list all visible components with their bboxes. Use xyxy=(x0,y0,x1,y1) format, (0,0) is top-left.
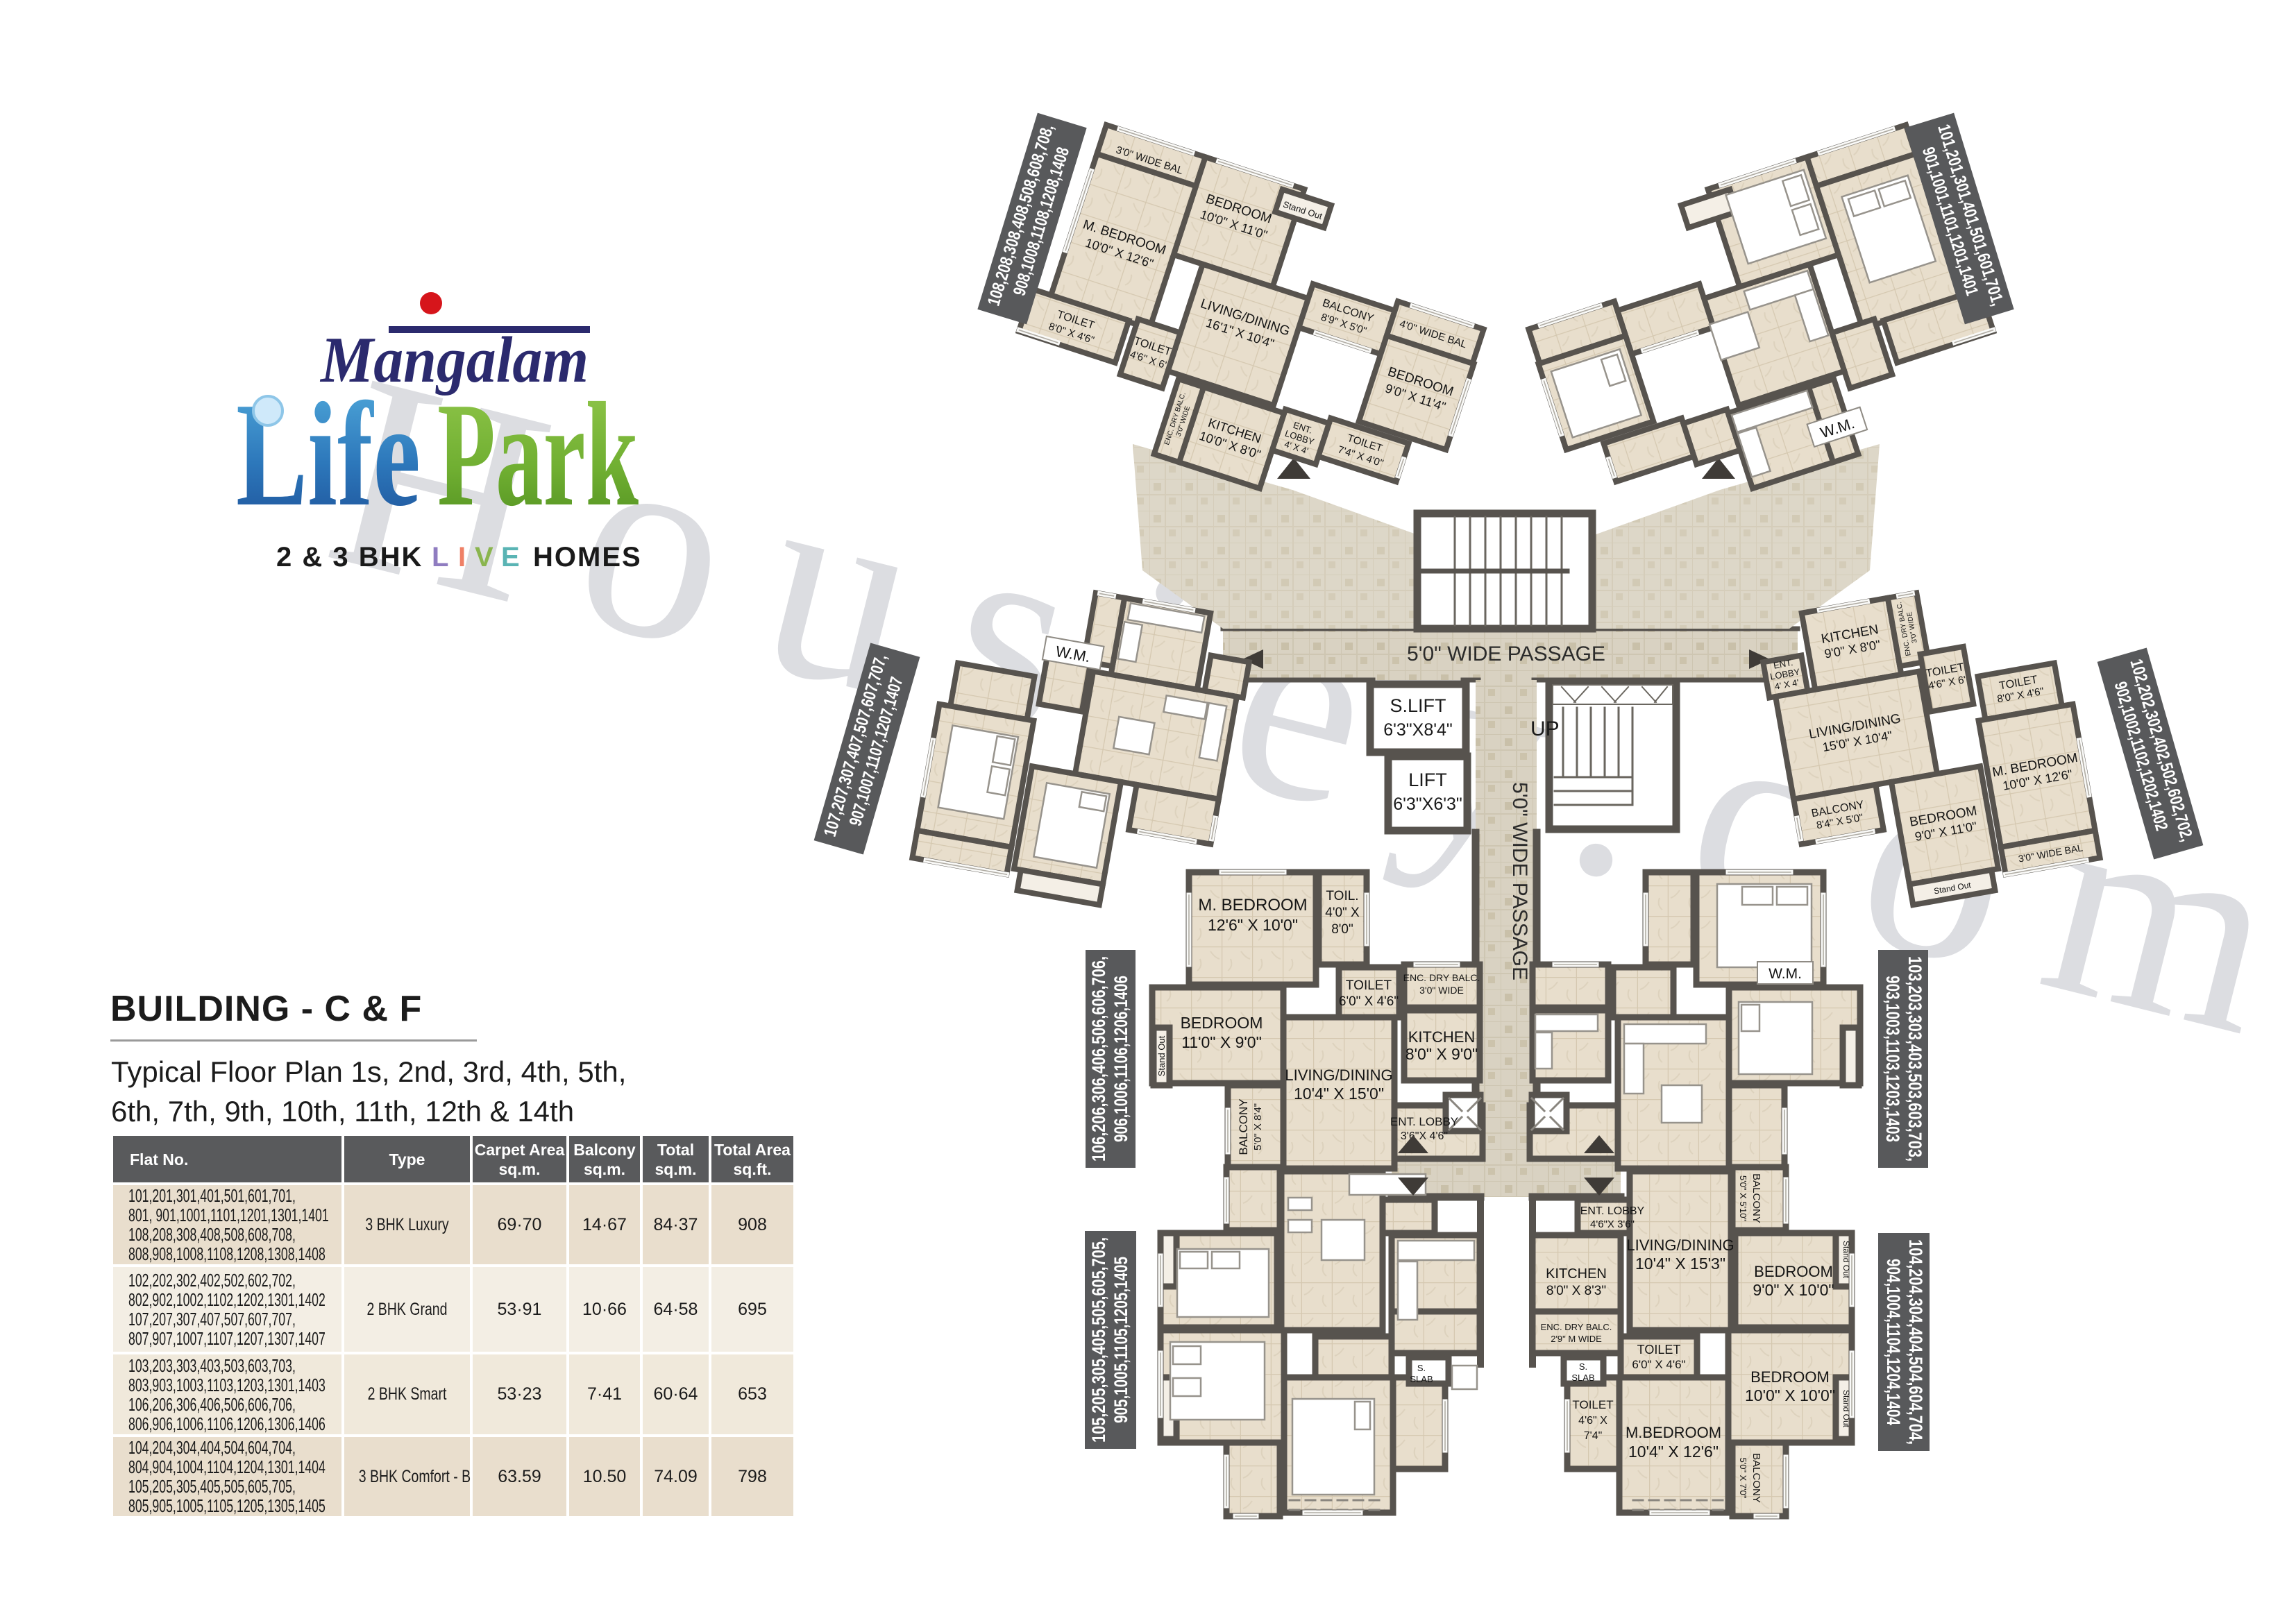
svg-text:W.M.: W.M. xyxy=(1769,966,1802,982)
svg-text:10'4" X 12'6": 10'4" X 12'6" xyxy=(1628,1443,1719,1461)
svg-text:TOIL.: TOIL. xyxy=(1326,889,1358,903)
svg-text:I: I xyxy=(458,542,467,572)
svg-text:5'0" WIDE PASSAGE: 5'0" WIDE PASSAGE xyxy=(1407,643,1605,665)
svg-text:8'0" X 9'0": 8'0" X 9'0" xyxy=(1406,1045,1478,1063)
svg-text:2 & 3 BHK: 2 & 3 BHK xyxy=(276,542,423,572)
svg-text:8'0": 8'0" xyxy=(1331,922,1353,937)
svg-text:5'0" X 5'10": 5'0" X 5'10" xyxy=(1738,1175,1748,1222)
svg-text:4'0" X: 4'0" X xyxy=(1325,906,1360,920)
svg-text:6'0" X 4'6": 6'0" X 4'6" xyxy=(1632,1358,1685,1371)
svg-text:904,1004,1104,1204,1404: 904,1004,1104,1204,1404 xyxy=(1883,1259,1904,1425)
svg-text:V: V xyxy=(475,542,495,572)
svg-text:3'6"X 4'6": 3'6"X 4'6" xyxy=(1401,1130,1448,1142)
svg-text:TOILET: TOILET xyxy=(1572,1398,1613,1411)
svg-text:4'6"X 3'6": 4'6"X 3'6" xyxy=(1590,1218,1635,1230)
svg-text:M. BEDROOM: M. BEDROOM xyxy=(1198,896,1307,915)
svg-text:8'0" X 8'3": 8'0" X 8'3" xyxy=(1546,1284,1606,1298)
svg-text:106,206,306,406,506,606,706,: 106,206,306,406,506,606,706, xyxy=(1088,956,1109,1162)
svg-text:905,1005,1105,1205,1405: 905,1005,1105,1205,1405 xyxy=(1111,1257,1131,1423)
svg-text:Stand Out: Stand Out xyxy=(1841,1390,1851,1428)
svg-text:SLAB: SLAB xyxy=(1571,1373,1594,1383)
svg-text:2'9" M WIDE: 2'9" M WIDE xyxy=(1551,1334,1602,1344)
svg-text:S.: S. xyxy=(1417,1363,1426,1373)
svg-text:ENC. DRY BALC.: ENC. DRY BALC. xyxy=(1541,1322,1612,1332)
svg-text:ENT. LOBBY: ENT. LOBBY xyxy=(1390,1115,1458,1128)
svg-text:12'6" X 10'0": 12'6" X 10'0" xyxy=(1208,916,1298,934)
svg-text:Park: Park xyxy=(437,371,639,537)
svg-text:7'4": 7'4" xyxy=(1584,1430,1603,1442)
svg-text:BEDROOM: BEDROOM xyxy=(1750,1368,1830,1386)
svg-text:10'4" X 15'0": 10'4" X 15'0" xyxy=(1294,1085,1384,1103)
svg-text:M.BEDROOM: M.BEDROOM xyxy=(1626,1424,1721,1441)
svg-text:L: L xyxy=(432,542,450,572)
svg-text:3'0" WIDE: 3'0" WIDE xyxy=(1419,985,1464,996)
svg-text:103,203,303,403,503,603,703,: 103,203,303,403,503,603,703, xyxy=(1905,956,1925,1162)
svg-text:S.LIFT: S.LIFT xyxy=(1390,695,1446,716)
svg-text:KITCHEN: KITCHEN xyxy=(1546,1266,1607,1282)
svg-text:903,1003,1103,1203,1403: 903,1003,1103,1203,1403 xyxy=(1882,976,1903,1142)
svg-text:KITCHEN: KITCHEN xyxy=(1408,1028,1476,1046)
svg-text:LIVING/DINING: LIVING/DINING xyxy=(1626,1237,1734,1254)
svg-text:6'3"X6'3": 6'3"X6'3" xyxy=(1393,794,1462,814)
svg-text:UP: UP xyxy=(1530,717,1560,740)
svg-text:LIVING/DINING: LIVING/DINING xyxy=(1285,1067,1392,1084)
svg-text:6'3"X8'4": 6'3"X8'4" xyxy=(1383,720,1453,740)
svg-text:TOILET: TOILET xyxy=(1346,978,1392,993)
svg-text:LIFT: LIFT xyxy=(1408,770,1447,790)
svg-text:5'0" WIDE PASSAGE: 5'0" WIDE PASSAGE xyxy=(1508,782,1531,980)
svg-text:BALCONY: BALCONY xyxy=(1237,1098,1250,1155)
svg-text:BALCONY: BALCONY xyxy=(1750,1453,1762,1503)
svg-text:5'0" X 8'4": 5'0" X 8'4" xyxy=(1252,1103,1264,1150)
svg-text:ENC. DRY BALC.: ENC. DRY BALC. xyxy=(1403,972,1480,983)
svg-text:Stand Out: Stand Out xyxy=(1156,1035,1167,1076)
svg-text:BALCONY: BALCONY xyxy=(1750,1173,1762,1223)
svg-text:ENT. LOBBY: ENT. LOBBY xyxy=(1580,1205,1645,1217)
svg-text:11'0" X 9'0": 11'0" X 9'0" xyxy=(1181,1033,1261,1051)
svg-text:BEDROOM: BEDROOM xyxy=(1754,1263,1833,1280)
svg-text:4'6" X: 4'6" X xyxy=(1578,1415,1607,1427)
svg-text:5'0" X 7'0": 5'0" X 7'0" xyxy=(1738,1457,1748,1498)
svg-text:TOILET: TOILET xyxy=(1637,1343,1681,1357)
svg-text:S.: S. xyxy=(1579,1361,1587,1372)
svg-text:6'0" X 4'6": 6'0" X 4'6" xyxy=(1339,994,1399,1009)
svg-text:10'4" X 15'3": 10'4" X 15'3" xyxy=(1635,1255,1725,1273)
svg-text:10'0" X 10'0": 10'0" X 10'0" xyxy=(1745,1386,1835,1404)
svg-text:HOMES: HOMES xyxy=(533,542,642,572)
svg-text:Stand Out: Stand Out xyxy=(1841,1241,1851,1279)
svg-text:SLAB: SLAB xyxy=(1410,1374,1433,1384)
svg-text:E: E xyxy=(501,542,521,572)
svg-text:105,205,305,405,505,605,705,: 105,205,305,405,505,605,705, xyxy=(1088,1237,1109,1443)
svg-text:104,204,304,404,504,604,704,: 104,204,304,404,504,604,704, xyxy=(1905,1239,1926,1445)
svg-text:906,1006,1106,1206,1406: 906,1006,1106,1206,1406 xyxy=(1111,976,1131,1142)
svg-text:9'0" X 10'0": 9'0" X 10'0" xyxy=(1753,1281,1834,1299)
svg-text:BEDROOM: BEDROOM xyxy=(1181,1014,1263,1032)
